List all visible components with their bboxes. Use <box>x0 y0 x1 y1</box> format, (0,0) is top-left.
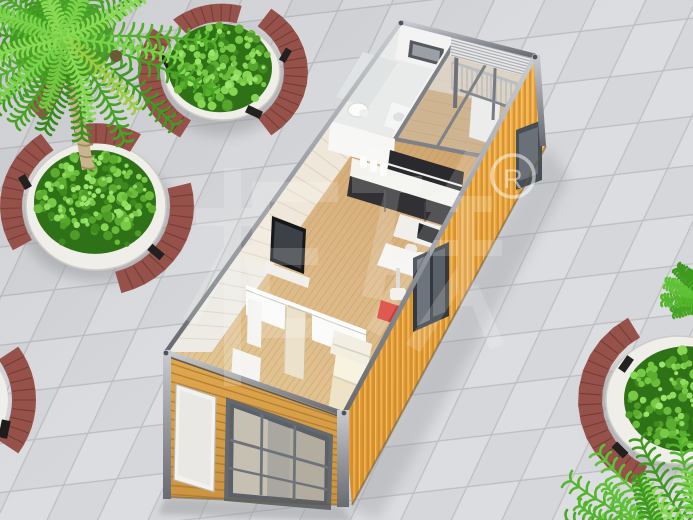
svg-text:R: R <box>503 164 523 194</box>
